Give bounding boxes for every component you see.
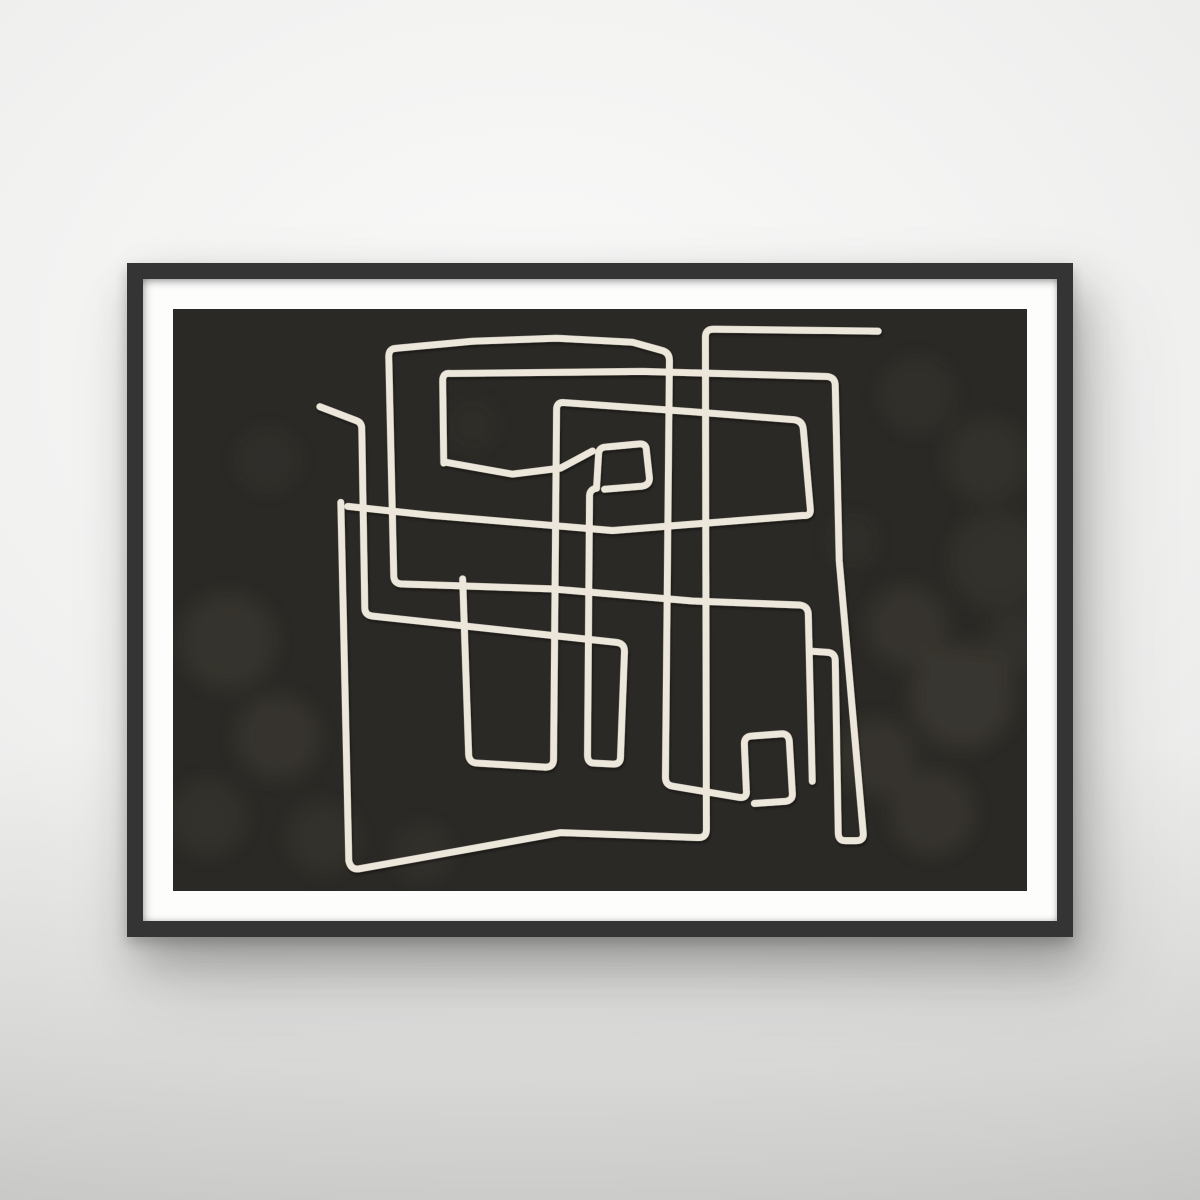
maze-outer-loop xyxy=(341,329,878,869)
maze-lines xyxy=(320,329,878,869)
wall xyxy=(0,0,1200,1200)
poster-frame xyxy=(127,263,1073,937)
maze-line-art xyxy=(173,309,1027,891)
texture-blotches xyxy=(173,356,1027,883)
mat-board xyxy=(143,279,1057,921)
maze-square-feeder xyxy=(445,451,593,474)
artwork-canvas xyxy=(173,309,1027,891)
